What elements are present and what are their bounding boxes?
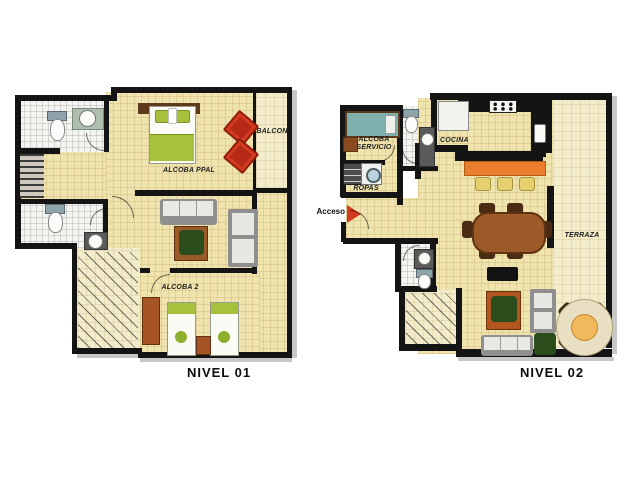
terrace-table-top (571, 314, 598, 341)
armchair (530, 308, 556, 333)
staircase (78, 252, 138, 348)
stove (489, 100, 517, 113)
room-label-balcon: BALCON (254, 128, 290, 136)
wall-shadow (140, 358, 292, 362)
bed-flower-motif (175, 331, 187, 343)
wall (253, 188, 292, 193)
wall (399, 286, 437, 292)
plan-title-nivel-02: NIVEL 02 (492, 365, 612, 380)
room-label-ropas: ROPAS (348, 185, 384, 193)
wall (395, 238, 401, 292)
bar-stool (497, 177, 513, 191)
bed-flower-motif (218, 331, 230, 343)
bed-pillow (168, 108, 177, 124)
wall (140, 268, 150, 273)
plan-title-nivel-01: NIVEL 01 (159, 365, 279, 380)
bed-blanket (150, 134, 194, 161)
wall (104, 98, 109, 152)
wall (399, 288, 405, 348)
wall (343, 238, 438, 244)
dining-table (472, 212, 546, 254)
tv-console (487, 267, 518, 281)
room-label-alcoba-ppal: ALCOBA PPAL (148, 167, 230, 175)
sink (79, 110, 96, 127)
sofa-cushions (484, 337, 530, 350)
bar-stool (475, 177, 491, 191)
bar-stool (519, 177, 535, 191)
toilet (48, 212, 63, 233)
room-label-alcoba-2: ALCOBA 2 (150, 284, 210, 292)
closet-strip-floor (256, 188, 288, 356)
wall-shadow (292, 90, 297, 358)
nightstand (196, 336, 211, 355)
wall-shadow (77, 354, 141, 358)
bed-pillow (155, 110, 169, 123)
wall (135, 190, 256, 196)
bed-pillow (176, 110, 190, 123)
bed-blanket (211, 303, 238, 314)
toilet (50, 119, 65, 141)
staircase (406, 293, 457, 345)
closet (20, 154, 44, 198)
plant (179, 230, 204, 255)
fridge (438, 101, 469, 131)
wall (111, 87, 117, 101)
wall (287, 87, 292, 192)
wardrobe (142, 297, 160, 345)
room-label-cocina: COCINA (440, 137, 480, 145)
toilet (418, 274, 431, 289)
balcony-window-wall (253, 93, 256, 190)
armchair (228, 235, 258, 267)
plant (491, 296, 517, 322)
washing-machine (361, 163, 382, 185)
toilet (405, 116, 418, 133)
twin-bed (167, 302, 196, 356)
kitchen-sink (534, 124, 546, 143)
wall (111, 87, 292, 93)
entrance-label: Acceso (310, 207, 345, 216)
room-label-alcoba-servicio: ALCOBA SERVICIO (352, 136, 396, 153)
laundry-cabinet (343, 163, 362, 185)
wall (15, 243, 77, 249)
wall (72, 348, 142, 354)
breakfast-bar (464, 161, 546, 176)
wall-shadow (458, 357, 614, 361)
bed-blanket (168, 303, 195, 314)
twin-bed (210, 302, 239, 356)
balcony-floor (256, 92, 290, 188)
sink (421, 133, 434, 146)
wall (170, 268, 256, 273)
wall (547, 186, 554, 248)
wall (455, 151, 543, 161)
wall (287, 188, 292, 358)
wall-shadow (612, 96, 617, 354)
sink (418, 252, 431, 265)
wall (15, 95, 117, 101)
wall (72, 243, 77, 353)
plant (534, 333, 556, 355)
sofa-cushions (163, 201, 214, 216)
service-bed (345, 111, 400, 138)
sink (88, 234, 103, 249)
room-label-terraza: TERRAZA (560, 232, 604, 240)
floorplan-image: ALCOBA PPAL BALCON ALCOBA 2 NIVEL 01 (0, 0, 640, 480)
wall (399, 344, 459, 351)
